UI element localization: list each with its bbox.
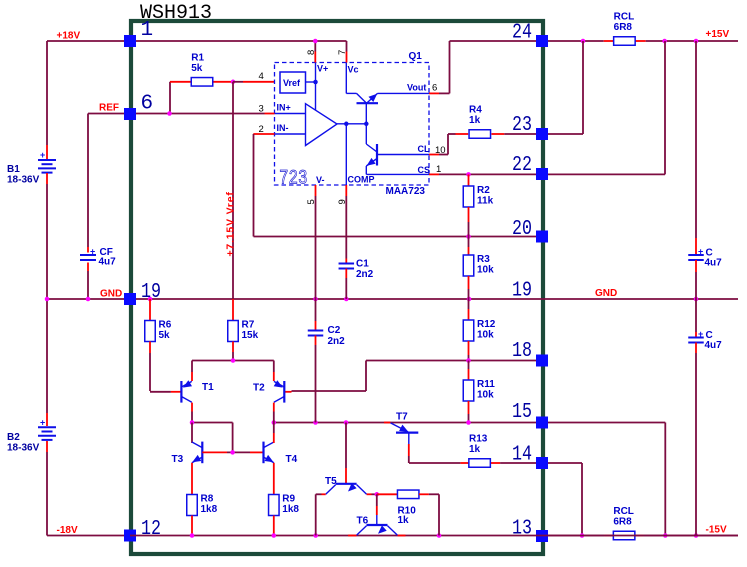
svg-text:10k: 10k [477,390,494,401]
svg-text:-15V: -15V [706,525,727,536]
svg-text:-18V: -18V [57,525,78,536]
svg-text:6: 6 [141,93,154,116]
svg-text:CL: CL [418,144,430,154]
svg-text:T6: T6 [357,516,369,527]
svg-text:COMP: COMP [348,175,375,185]
svg-text:19: 19 [141,281,161,304]
svg-text:R11: R11 [477,379,495,390]
svg-text:18-36V: 18-36V [7,443,40,454]
svg-text:REF: REF [99,103,119,114]
svg-text:GND: GND [595,288,617,299]
svg-text:11k: 11k [477,196,494,207]
svg-text:6R8: 6R8 [613,517,632,528]
svg-text:R9: R9 [282,494,295,505]
svg-text:IN+: IN+ [277,103,291,113]
svg-text:4u7: 4u7 [99,257,117,268]
svg-text:C1: C1 [356,259,369,270]
svg-text:R6: R6 [159,320,172,331]
svg-text:CS: CS [418,165,431,175]
svg-text:6R8: 6R8 [614,22,633,33]
svg-text:Vref: Vref [283,78,301,88]
svg-text:R1: R1 [191,52,204,63]
svg-text:8: 8 [306,50,317,55]
svg-text:+: + [698,247,703,257]
svg-text:1k: 1k [397,515,409,526]
svg-text:10k: 10k [477,330,494,341]
svg-text:R13: R13 [469,434,488,445]
svg-text:19: 19 [512,280,532,303]
svg-text:R8: R8 [201,494,214,505]
svg-text:723: 723 [279,168,308,191]
svg-text:15: 15 [512,401,532,424]
svg-text:+15V: +15V [706,29,730,40]
svg-text:+: + [90,247,95,257]
svg-text:T4: T4 [286,454,298,465]
svg-text:MAA723: MAA723 [386,186,426,197]
svg-text:R4: R4 [469,105,482,116]
svg-text:T3: T3 [172,454,184,465]
svg-text:C2: C2 [328,325,341,336]
svg-text:R3: R3 [477,254,490,265]
svg-text:T2: T2 [253,383,265,394]
svg-text:13: 13 [512,518,532,541]
svg-text:GND: GND [100,289,122,300]
svg-text:1: 1 [141,19,154,42]
svg-text:T7: T7 [396,412,408,423]
svg-text:R7: R7 [242,320,255,331]
svg-text:RCL: RCL [614,12,635,23]
svg-text:7: 7 [337,50,348,55]
svg-text:18-36V: 18-36V [7,175,40,186]
svg-text:+: + [40,417,45,427]
svg-text:3: 3 [259,104,264,115]
svg-text:5k: 5k [191,63,203,74]
svg-text:10k: 10k [477,265,494,276]
svg-text:RCL: RCL [613,506,634,517]
svg-text:2: 2 [259,124,264,135]
svg-text:1k: 1k [469,444,481,455]
svg-text:12: 12 [141,518,161,541]
svg-text:R2: R2 [477,185,490,196]
svg-text:4u7: 4u7 [705,340,723,351]
svg-text:Vc: Vc [348,65,359,75]
svg-text:22: 22 [512,154,532,177]
svg-text:+: + [40,150,45,160]
svg-text:B2: B2 [7,432,20,443]
svg-text:2n2: 2n2 [328,336,346,347]
svg-text:18: 18 [512,340,532,363]
svg-text:4: 4 [259,71,264,82]
svg-text:2n2: 2n2 [356,269,374,280]
svg-text:6: 6 [432,83,437,94]
svg-text:V+: V+ [317,64,328,74]
svg-text:IN-: IN- [277,123,289,133]
svg-text:5k: 5k [159,330,171,341]
svg-text:B1: B1 [7,164,20,175]
svg-text:Vout: Vout [407,83,426,93]
svg-text:1k: 1k [469,115,481,126]
svg-text:+: + [698,329,703,339]
svg-text:T5: T5 [325,476,337,487]
svg-text:1: 1 [436,164,441,175]
svg-text:T1: T1 [202,382,214,393]
svg-text:V-: V- [316,175,325,185]
svg-text:Q1: Q1 [409,51,423,62]
svg-text:+7.15V Vref: +7.15V Vref [225,191,237,256]
svg-text:4u7: 4u7 [705,258,723,269]
svg-text:+18V: +18V [57,31,81,42]
svg-text:15k: 15k [242,330,259,341]
svg-text:1k8: 1k8 [201,504,218,515]
svg-text:1k8: 1k8 [282,504,299,515]
svg-text:20: 20 [512,218,532,241]
svg-text:R12: R12 [477,319,496,330]
